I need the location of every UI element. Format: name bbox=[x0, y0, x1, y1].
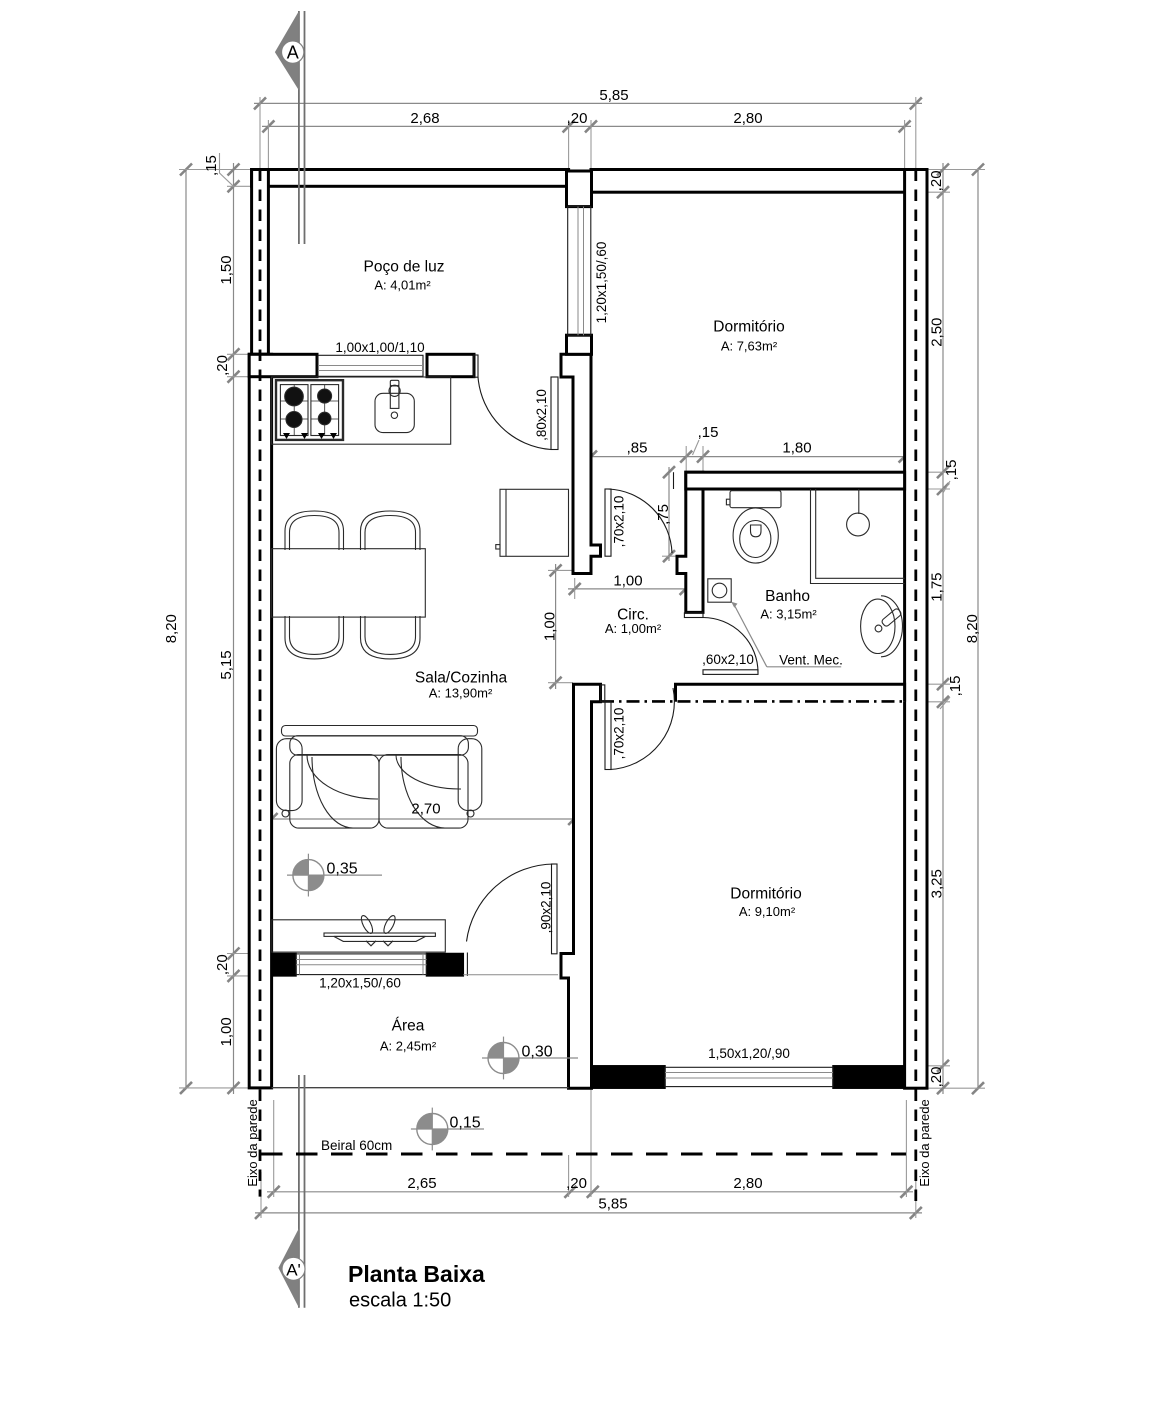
svg-text:8,20: 8,20 bbox=[163, 614, 180, 643]
svg-text:1,75: 1,75 bbox=[929, 572, 946, 601]
svg-text:2,70: 2,70 bbox=[411, 801, 440, 818]
svg-text:1,00: 1,00 bbox=[218, 1017, 235, 1046]
svg-text:,90x2,10: ,90x2,10 bbox=[539, 882, 554, 934]
svg-text:A: A bbox=[287, 43, 299, 63]
svg-text:escala 1:50: escala 1:50 bbox=[349, 1290, 451, 1312]
svg-text:5,15: 5,15 bbox=[218, 650, 235, 679]
svg-text:Eixo da parede: Eixo da parede bbox=[917, 1099, 932, 1186]
svg-text:,85: ,85 bbox=[627, 440, 648, 457]
svg-text:,60x2,10: ,60x2,10 bbox=[702, 652, 754, 667]
svg-text:5,85: 5,85 bbox=[598, 1196, 627, 1213]
svg-text:2,65: 2,65 bbox=[407, 1175, 436, 1192]
svg-text:2,50: 2,50 bbox=[929, 318, 946, 347]
svg-text:5,85: 5,85 bbox=[599, 87, 628, 104]
svg-text:Planta Baixa: Planta Baixa bbox=[348, 1261, 485, 1287]
svg-text:A: 13,90m²: A: 13,90m² bbox=[429, 686, 493, 701]
svg-text:,20: ,20 bbox=[214, 355, 231, 376]
svg-text:Área: Área bbox=[392, 1018, 425, 1035]
svg-text:,15: ,15 bbox=[943, 460, 960, 481]
svg-text:Poço de luz: Poço de luz bbox=[364, 259, 445, 276]
svg-text:A: 7,63m²: A: 7,63m² bbox=[721, 339, 778, 354]
svg-text:2,80: 2,80 bbox=[733, 1175, 762, 1192]
svg-text:,15: ,15 bbox=[698, 424, 719, 441]
svg-text:1,00x1,00/1,10: 1,00x1,00/1,10 bbox=[335, 340, 424, 355]
svg-text:,20: ,20 bbox=[928, 170, 945, 191]
svg-text:A: 2,45m²: A: 2,45m² bbox=[380, 1039, 437, 1054]
svg-text:Dormitório: Dormitório bbox=[730, 886, 801, 903]
svg-text:1,20x1,50/,60: 1,20x1,50/,60 bbox=[594, 242, 609, 324]
svg-text:1,00: 1,00 bbox=[613, 573, 642, 590]
svg-text:A: 9,10m²: A: 9,10m² bbox=[739, 904, 796, 919]
svg-text:3,25: 3,25 bbox=[929, 869, 946, 898]
svg-text:,15: ,15 bbox=[947, 676, 964, 697]
svg-text:A: 3,15m²: A: 3,15m² bbox=[760, 607, 817, 622]
svg-text:Sala/Cozinha: Sala/Cozinha bbox=[415, 670, 508, 687]
svg-text:0,15: 0,15 bbox=[450, 1115, 481, 1132]
svg-text:,70x2,10: ,70x2,10 bbox=[612, 708, 627, 760]
svg-text:0,35: 0,35 bbox=[327, 861, 358, 878]
svg-text:1,50: 1,50 bbox=[218, 255, 235, 284]
svg-text:,15: ,15 bbox=[203, 155, 220, 176]
svg-text:0,30: 0,30 bbox=[522, 1044, 553, 1061]
svg-text:A: 4,01m²: A: 4,01m² bbox=[374, 278, 431, 293]
svg-text:1,20x1,50/,60: 1,20x1,50/,60 bbox=[319, 976, 401, 991]
svg-text:1,50x1,20/,90: 1,50x1,20/,90 bbox=[708, 1046, 790, 1061]
svg-text:,20: ,20 bbox=[567, 110, 588, 127]
svg-text:,20: ,20 bbox=[214, 954, 231, 975]
svg-text:,75: ,75 bbox=[655, 504, 672, 525]
svg-text:2,80: 2,80 bbox=[733, 110, 762, 127]
svg-text:Dormitório: Dormitório bbox=[713, 319, 784, 336]
svg-text:,20: ,20 bbox=[566, 1175, 587, 1192]
svg-text:,80x2,10: ,80x2,10 bbox=[534, 389, 549, 441]
svg-text:Beiral 60cm: Beiral 60cm bbox=[321, 1138, 392, 1153]
svg-text:,70x2,10: ,70x2,10 bbox=[612, 496, 627, 548]
svg-text:1,80: 1,80 bbox=[782, 440, 811, 457]
svg-text:,20: ,20 bbox=[928, 1067, 945, 1088]
svg-text:A': A' bbox=[286, 1260, 301, 1279]
svg-text:Vent. Mec.: Vent. Mec. bbox=[779, 653, 843, 668]
svg-text:2,68: 2,68 bbox=[410, 110, 439, 127]
svg-text:Banho: Banho bbox=[765, 588, 810, 605]
svg-text:1,00: 1,00 bbox=[542, 612, 559, 641]
svg-text:A: 1,00m²: A: 1,00m² bbox=[605, 621, 662, 636]
svg-text:8,20: 8,20 bbox=[964, 614, 981, 643]
svg-text:Eixo da parede: Eixo da parede bbox=[245, 1099, 260, 1186]
